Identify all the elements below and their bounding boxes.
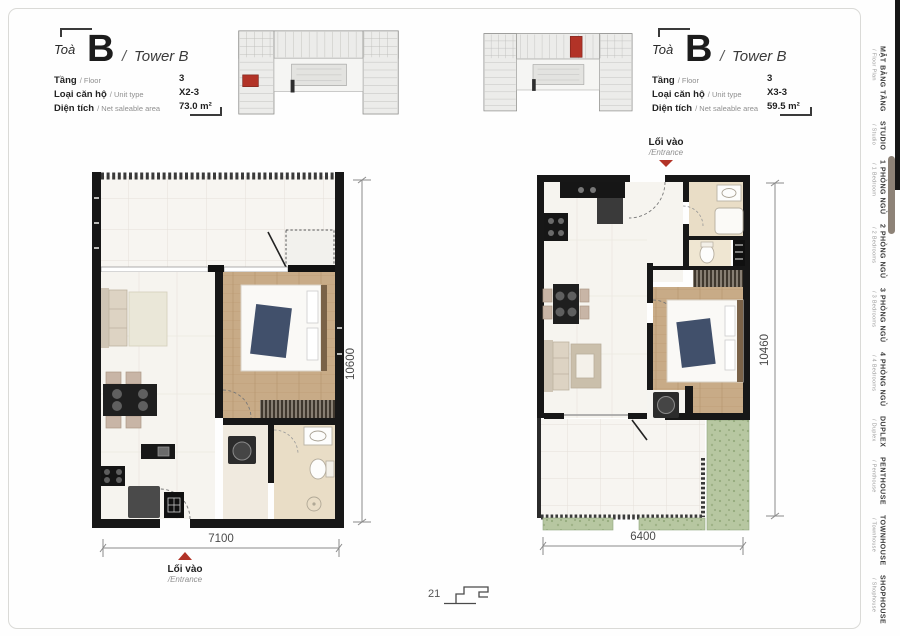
info-row-area: Diện tích/ Net saleable area 59.5 m²: [652, 100, 837, 114]
building-name: Tower B: [732, 48, 786, 65]
dim-height-label: 10600: [345, 348, 357, 380]
row-value: X2-3: [179, 86, 199, 100]
info-row-floor: Tầng/ Floor 3: [652, 72, 837, 86]
floor-plan-right: Lối vào /Entrance: [535, 128, 790, 568]
row-sublabel: / Floor: [80, 76, 101, 85]
row-value: 73.0 m²: [179, 100, 212, 114]
info-row-area: Diện tích/ Net saleable area 73.0 m²: [54, 100, 239, 114]
sidebar-tab-townhouse[interactable]: TOWNHOUSE / Townhouse: [871, 515, 886, 566]
core-mark: [532, 79, 536, 91]
tab-label-en: / Townhouse: [871, 518, 877, 552]
tab-label-en: / Shophouse: [871, 578, 877, 612]
tab-label-en: / 2 Bedrooms: [871, 227, 877, 263]
balcony-floor: [541, 419, 705, 518]
sidebar-tab-studio[interactable]: STUDIO / Studio: [871, 121, 886, 150]
page-footer: 21: [404, 582, 504, 616]
tab-label-vi: 2 PHÒNG NGỦ: [879, 224, 886, 279]
tab-label-en: / 3 Bedrooms: [871, 291, 877, 327]
entrance-label-vi: Lối vào: [167, 563, 202, 575]
tab-label-vi: 1 PHÒNG NGỦ: [879, 160, 886, 215]
category-sidebar: MẶT BẰNG TẦNG / Floor Plan STUDIO / Stud…: [861, 0, 895, 636]
toilet-icon: [310, 459, 334, 479]
dim-width-label: 6400: [630, 531, 656, 543]
ac-ledge: [286, 230, 334, 267]
row-label: Loại căn hộ: [652, 89, 705, 100]
kitchen-island-icon: [141, 444, 175, 459]
tab-label-en: / Floor Plan: [871, 49, 877, 81]
unit-info-left: Toà B / Tower B Tầng/ Floor 3 Loại căn h…: [48, 28, 243, 114]
dim-width-label: 7100: [208, 533, 234, 545]
tab-label-vi: 4 PHÒNG NGỦ: [879, 352, 886, 407]
sofa-icon: [101, 288, 127, 348]
page-number: 21: [428, 588, 440, 600]
row-sublabel: / Floor: [678, 76, 699, 85]
dim-height-label: 10460: [759, 334, 771, 366]
toilet-icon: [700, 242, 714, 263]
row-value: X3-3: [767, 86, 787, 100]
sidebar-tab-2-bedrooms[interactable]: 2 PHÒNG NGỦ / 2 Bedrooms: [871, 224, 886, 279]
title-separator: /: [122, 48, 126, 65]
fridge-icon: [128, 486, 160, 518]
key-plan-right: [483, 26, 633, 114]
sofa-icon: [544, 340, 569, 392]
washing-machine-icon: [228, 436, 256, 464]
tab-label-en: / Penthouse: [871, 460, 877, 493]
tab-label-vi: PENTHOUSE: [879, 457, 886, 505]
highlighted-unit: [243, 75, 259, 87]
building-letter: B: [87, 28, 114, 71]
info-row-unit-type: Loại căn hộ/ Unit type X2-3: [54, 86, 239, 100]
building-label: Toà: [652, 42, 673, 57]
cooktop-icon: [544, 213, 568, 241]
entrance-label-vi: Lối vào: [648, 136, 683, 148]
wardrobe-icon: [260, 400, 335, 418]
tab-label-vi: DUPLEX: [879, 416, 886, 447]
sidebar-tab-penthouse[interactable]: PENTHOUSE / Penthouse: [871, 457, 886, 505]
brand-mark-icon: [442, 582, 494, 610]
tab-label-en: / Duplex: [871, 419, 877, 442]
row-value: 59.5 m²: [767, 100, 800, 114]
unit-info-right: Toà B / Tower B Tầng/ Floor 3 Loại căn h…: [646, 28, 841, 114]
row-sublabel: / Net saleable area: [97, 104, 160, 113]
building-name: Tower B: [134, 48, 188, 65]
coffee-table-icon: [576, 354, 594, 378]
sidebar-tab-shophouse[interactable]: SHOPHOUSE / Shophouse: [871, 575, 886, 624]
sidebar-tab-3-bedrooms[interactable]: 3 PHÒNG NGỦ / 3 Bedrooms: [871, 288, 886, 343]
row-label: Loại căn hộ: [54, 89, 107, 100]
sidebar-tab-duplex[interactable]: DUPLEX / Duplex: [871, 416, 886, 447]
unit-title: Toà B / Tower B: [652, 36, 837, 70]
sink-icon: [717, 185, 741, 201]
unit-title: Toà B / Tower B: [54, 36, 239, 70]
row-sublabel: / Unit type: [708, 90, 742, 99]
cooktop-icon: [101, 466, 125, 486]
sidebar-tab-floor-plan[interactable]: MẶT BẰNG TẦNG / Floor Plan: [871, 46, 886, 112]
highlighted-unit: [570, 36, 582, 57]
entrance-label-en: /Entrance: [648, 148, 684, 157]
row-value: 3: [179, 72, 184, 86]
tab-label-vi: MẶT BẰNG TẦNG: [879, 46, 886, 112]
shoe-cabinet-icon: [164, 492, 184, 518]
tab-label-en: / Studio: [871, 124, 877, 145]
row-label: Diện tích: [652, 103, 692, 114]
title-separator: /: [720, 48, 724, 65]
tab-label-vi: TOWNHOUSE: [879, 515, 886, 566]
washing-machine-icon: [653, 392, 679, 418]
key-plan-left: [236, 25, 401, 115]
glass-door: [101, 267, 208, 272]
row-label: Tầng: [652, 75, 675, 86]
sidebar-tab-4-bedrooms[interactable]: 4 PHÒNG NGỦ / 4 Bedrooms: [871, 352, 886, 407]
page-edge-bar: [895, 0, 900, 190]
tab-label-en: / 1 Bedroom: [871, 163, 877, 196]
tab-label-vi: SHOPHOUSE: [879, 575, 886, 624]
entrance-label-en: /Entrance: [167, 575, 203, 584]
row-value: 3: [767, 72, 772, 86]
info-row-floor: Tầng/ Floor 3: [54, 72, 239, 86]
scrollbar-thumb[interactable]: [888, 156, 895, 234]
rug-icon: [129, 292, 167, 346]
row-label: Diện tích: [54, 103, 94, 114]
floor-plan-left: 10600 7100 Lối vào /Entrance: [90, 168, 382, 588]
bathtub-icon: [715, 208, 743, 234]
bed-icon: [241, 285, 327, 371]
wardrobe-icon: [693, 270, 743, 287]
balcony: [101, 176, 335, 274]
row-label: Tầng: [54, 75, 77, 86]
core-mark: [291, 80, 295, 93]
building-letter: B: [685, 28, 712, 71]
row-sublabel: / Unit type: [110, 90, 144, 99]
bed-icon: [667, 300, 743, 382]
tab-label-en: / 4 Bedrooms: [871, 355, 877, 391]
sink-icon: [304, 427, 332, 445]
glass-door: [224, 267, 288, 272]
info-row-unit-type: Loại căn hộ/ Unit type X3-3: [652, 86, 837, 100]
tab-label-vi: 3 PHÒNG NGỦ: [879, 288, 886, 343]
entrance-arrow-icon: [659, 160, 673, 167]
tab-label-vi: STUDIO: [879, 121, 886, 150]
row-sublabel: / Net saleable area: [695, 104, 758, 113]
sidebar-tab-1-bedroom[interactable]: 1 PHÒNG NGỦ / 1 Bedroom: [871, 160, 886, 215]
building-label: Toà: [54, 42, 75, 57]
entrance-arrow-icon: [178, 552, 192, 560]
